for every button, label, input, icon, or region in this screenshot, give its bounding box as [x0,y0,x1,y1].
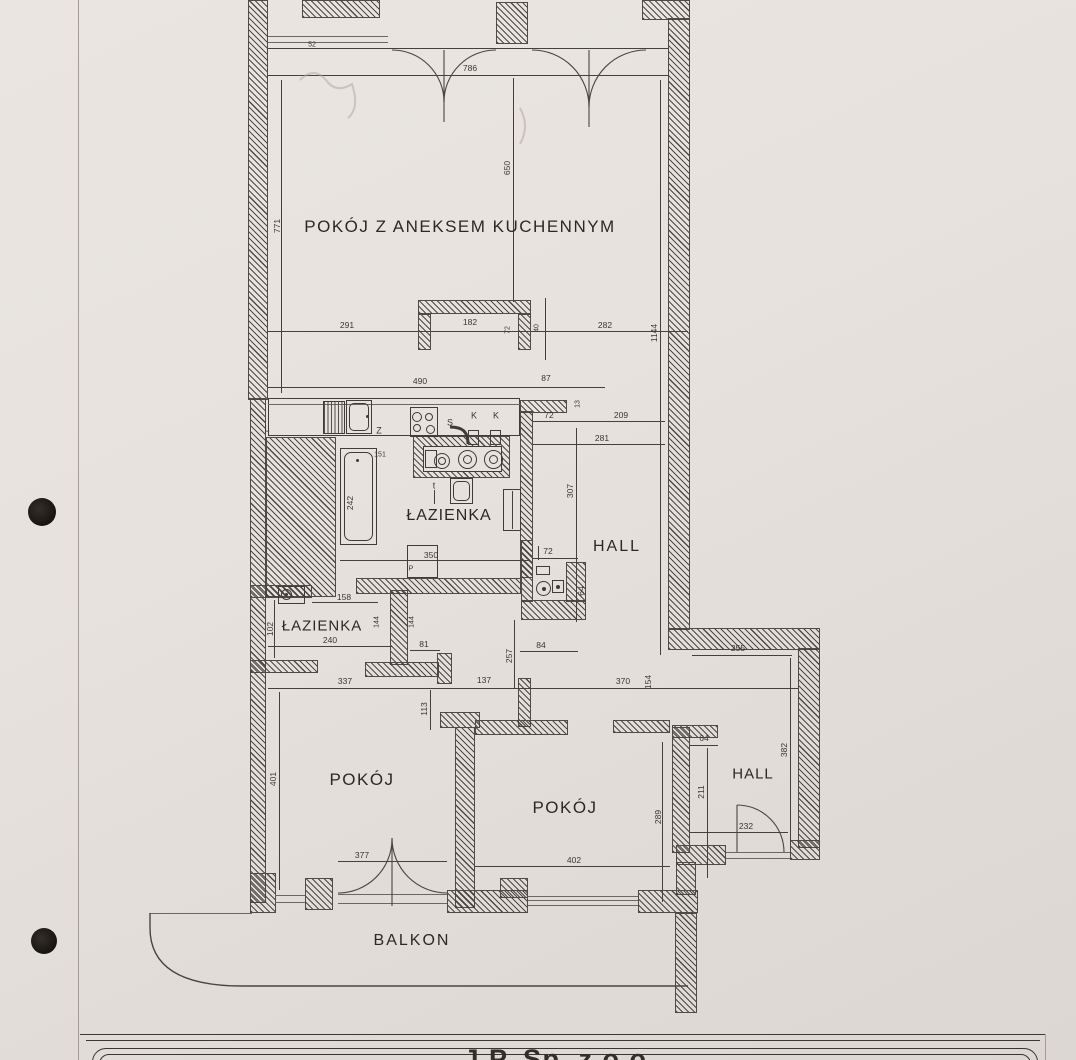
door-arc-top1-right [444,50,496,102]
scanned-floor-plan-page: POKÓJ Z ANEKSEM KUCHENNYM ŁAZIENKA HALL … [0,0,1076,1060]
dimline-650 [513,78,514,302]
window-top-left-line1 [268,36,388,37]
dim-102: 102 [266,622,275,636]
room-label-balcony: BALKON [374,932,451,950]
window-br-line2 [528,900,638,901]
wall-door-pillar [496,2,528,44]
dim-52: 52 [308,42,316,49]
kitchen-letter-z: Z [376,427,382,436]
door-arc-top2-right [589,50,646,107]
window-br-line1 [528,896,638,897]
wall-left-upper [248,0,268,400]
dim-382: 382 [780,743,789,757]
dim-232: 232 [739,822,753,831]
washbasin-inner [453,481,470,501]
dim-291: 291 [340,321,354,330]
wall-top-left-block [302,0,380,18]
riser-pipe-3i [489,455,498,464]
dimline-40-arrow [545,298,546,360]
wall-mid-cap [440,712,480,728]
wall-left-lower [250,398,266,903]
dimline-158 [312,602,378,603]
dim-242: 242 [346,496,355,510]
dimline-72-209 [533,421,665,422]
dim-154: 154 [644,675,653,689]
balcony-door-threshold1 [338,894,447,895]
vent-grille-1 [468,430,479,445]
dimline-81 [410,650,440,651]
dim-144-b: 144 [409,616,416,628]
balcony-door-arc-right [392,838,447,893]
radiator-line [512,491,513,529]
room-label-room-right: POKÓJ [532,798,597,818]
dim-87: 87 [541,374,550,383]
dimline-72-wc [533,558,578,559]
dim-370: 370 [616,677,630,686]
wc-bidet-dot [556,585,560,589]
dim-209: 209 [614,411,628,420]
dim-650: 650 [503,161,512,175]
balcony-top-line [150,913,252,914]
dim-255: 255 [731,644,745,653]
dimline-786 [268,75,668,76]
burner-1 [412,412,422,422]
dim-211: 211 [697,785,706,799]
titleblock-line-outer [80,1034,1045,1035]
top-wall-inner-line [268,48,668,49]
door-arc-top1-left [392,50,444,102]
dimline-211 [707,748,708,878]
dimline-240 [268,646,392,647]
dim-72-wc: 72 [543,547,552,556]
dimline-402 [475,866,670,867]
dimline-291-182-282 [268,331,688,332]
dimline-490-87 [268,387,605,388]
titleblock-right-edge [1045,1034,1046,1060]
kitchen-letter-s: S [447,419,453,428]
room-label-bath1: ŁAZIENKA [406,507,491,525]
dim-182: 182 [463,318,477,327]
room-label-bath2: ŁAZIENKA [282,618,363,635]
wall-bath1-bottom [356,578,521,594]
room-label-hall2: HALL [732,766,774,783]
wall-top-right-block [642,0,690,20]
riser-pipe-1i [438,457,446,465]
dim-64-hall2: 64 [699,734,708,743]
vent-grille-2 [490,430,501,445]
dim-40: 40 [534,324,541,332]
dim-289: 289 [654,810,663,824]
dimline-84 [520,651,578,652]
bathtub-drain [356,459,359,462]
burner-2 [425,413,433,421]
footer-company-name: J.P. Sp. z o.o. [463,1044,656,1060]
entrance-threshold2 [726,858,790,859]
burner-3 [413,424,421,432]
hole-punch-top [28,498,56,526]
window-bl-line2 [275,902,305,903]
vent-duct-right-leg [518,314,531,350]
wall-room-right-top-b [613,720,670,733]
dim-151: 151 [374,452,386,459]
dim-13: 13 [575,400,582,408]
dimline-232 [690,832,788,833]
wall-bottom-mid-block [638,890,698,913]
dim-282: 282 [598,321,612,330]
dim-402: 402 [567,856,581,865]
vent-duct-left-leg [418,314,431,350]
dim-786: 786 [463,64,477,73]
wall-entrance-right [790,840,820,860]
wall-hall2-left [672,727,690,853]
dimline-771 [281,80,282,393]
vent-duct-top [418,300,531,314]
basin-tap-line [434,490,435,504]
wall-bottom-left-corner [250,873,276,913]
dim-158: 158 [337,593,351,602]
kitchen-letter-k2: K [493,412,499,421]
dimline-113 [430,690,431,730]
wc-cistern [536,566,550,575]
sink-tap-dot [366,415,369,418]
titleblock-line-inner [86,1040,1040,1041]
pencil-scribble-1 [300,73,355,118]
dim-771: 771 [273,219,282,233]
entrance-threshold1 [726,852,790,853]
dim-72-hall: 72 [544,411,553,420]
bath1-letter-p: P [409,566,414,573]
bath1-letter-t: t [433,482,436,491]
wall-corridor-a [250,660,318,673]
bath2-fixture-dot [285,593,288,596]
wall-bottom-block-a [305,878,333,910]
dim-144-a: 144 [374,616,381,628]
wall-right-lower [798,648,820,848]
balcony-door-threshold2 [338,903,447,904]
dim-377: 377 [355,851,369,860]
window-bl-line1 [275,895,305,896]
room-label-living: POKÓJ Z ANEKSEM KUCHENNYM [304,217,615,237]
dim-490: 490 [413,377,427,386]
pencil-scribble-2 [520,108,525,144]
dim-281: 281 [595,434,609,443]
room-label-room-left: POKÓJ [329,770,394,790]
dimline-255 [692,655,792,656]
dimline-257 [514,620,515,688]
riser-pipe-2i [463,455,472,464]
wc-bowl-dot [542,587,546,591]
dimline-72-wc-tick [538,546,539,560]
dimline-401 [279,692,280,890]
door-arc-top2-left [532,50,589,107]
dim-81: 81 [419,640,428,649]
window-top-left-line2 [268,42,388,43]
wall-corridor-tcap [437,653,452,684]
wall-between-rooms [455,727,475,908]
wall-balcony-right [675,913,697,1013]
wall-wc-left [521,540,533,602]
page-margin-line [78,0,79,1060]
dimline-64b [690,745,718,746]
kitchen-letter-k1: K [471,412,477,421]
drainboard [323,401,345,434]
dim-137: 137 [477,676,491,685]
dim-1144: 1144 [650,324,659,342]
wall-room-right-top-a [475,720,568,735]
dim-84: 84 [536,641,545,650]
dim-257: 257 [505,649,514,663]
wall-right-upper [668,18,690,630]
kitchen-counter-edge [268,404,520,405]
dim-64-wc: 64 [577,586,586,595]
dimline-1144 [660,80,661,655]
room-label-hall1: HALL [593,538,641,556]
dim-72-vent: 72 [505,326,512,334]
shaft-hatch [266,437,336,597]
dim-113: 113 [420,702,429,716]
dim-401: 401 [269,772,278,786]
balcony-door-arc-left [338,839,392,893]
dim-240: 240 [323,636,337,645]
dimline-corridor [268,688,798,689]
dimline-377 [338,861,447,862]
dim-307: 307 [566,484,575,498]
wall-corridor-b [365,662,439,677]
arcs-overlay [0,0,1076,1060]
window-br-line3 [528,905,638,906]
dim-350: 350 [424,551,438,560]
kitchen-letter-l: L [264,425,269,434]
dimline-382 [790,658,791,845]
dim-337: 337 [338,677,352,686]
hole-punch-bottom [31,928,57,954]
dimline-281 [533,444,665,445]
burner-4 [426,425,435,434]
wall-bath2-right [390,590,408,665]
wall-bottom-block-c [500,878,528,898]
